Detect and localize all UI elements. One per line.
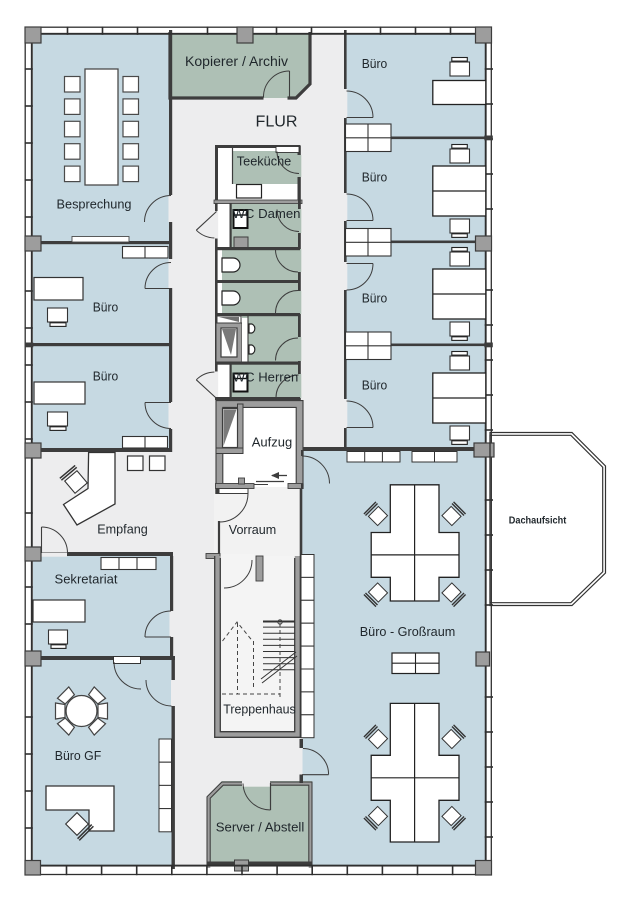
svg-text:Treppenhaus: Treppenhaus — [223, 702, 296, 717]
svg-text:Besprechung: Besprechung — [57, 197, 132, 212]
svg-text:FLUR: FLUR — [256, 114, 298, 131]
svg-text:Server / Abstell: Server / Abstell — [216, 820, 305, 835]
svg-text:Teeküche: Teeküche — [237, 154, 292, 169]
svg-text:Büro: Büro — [362, 56, 388, 71]
svg-text:WC Herren: WC Herren — [233, 370, 299, 385]
svg-text:Büro GF: Büro GF — [55, 748, 102, 763]
svg-text:Dachaufsicht: Dachaufsicht — [509, 515, 567, 527]
svg-text:Büro: Büro — [362, 378, 388, 393]
svg-text:Büro: Büro — [362, 291, 388, 306]
svg-text:Aufzug: Aufzug — [252, 435, 293, 450]
svg-text:Vorraum: Vorraum — [229, 522, 277, 537]
svg-text:Sekretariat: Sekretariat — [55, 572, 118, 587]
svg-text:WC Damen: WC Damen — [233, 206, 301, 221]
svg-text:Kopierer / Archiv: Kopierer / Archiv — [185, 53, 288, 69]
svg-text:Büro: Büro — [362, 170, 388, 185]
svg-text:Büro: Büro — [93, 369, 119, 384]
svg-text:Büro - Großraum: Büro - Großraum — [360, 624, 456, 639]
svg-text:Büro: Büro — [93, 300, 119, 315]
svg-text:Empfang: Empfang — [97, 522, 148, 537]
